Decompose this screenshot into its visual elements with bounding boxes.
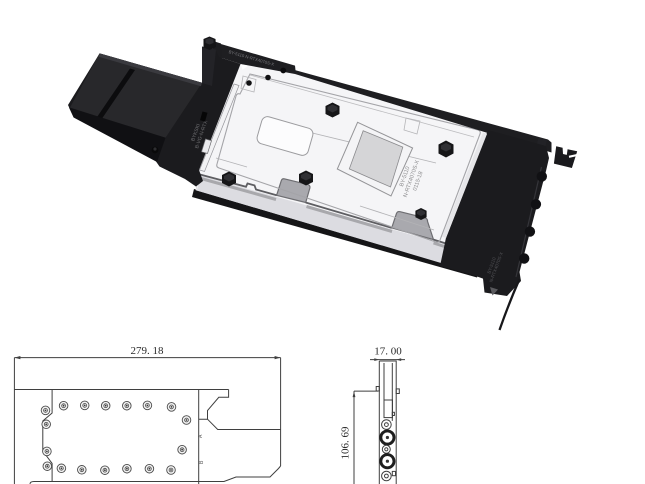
svg-text:279. 18: 279. 18	[131, 345, 165, 357]
svg-text:17. 00: 17. 00	[374, 346, 402, 358]
svg-text:106. 69: 106. 69	[340, 426, 352, 460]
